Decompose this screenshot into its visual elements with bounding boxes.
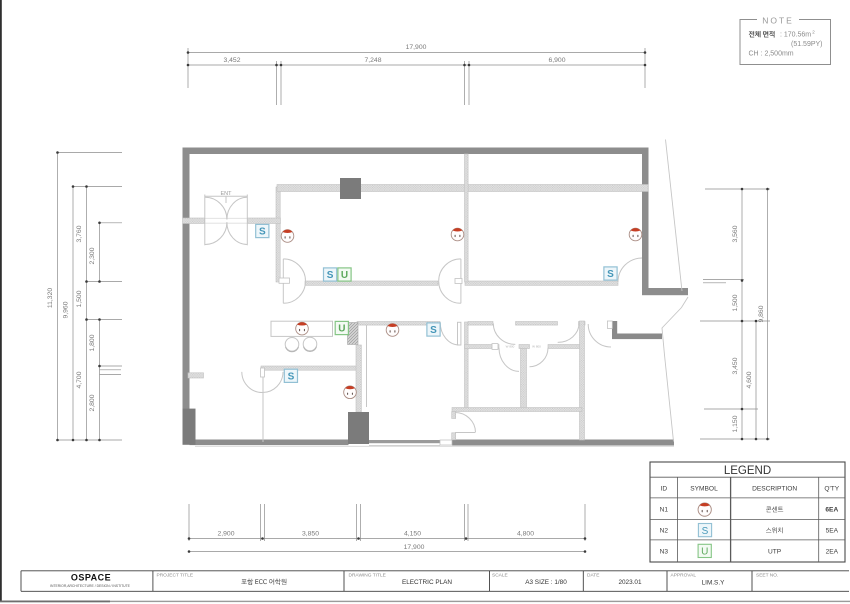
- svg-text:6,900: 6,900: [548, 57, 565, 64]
- svg-text:1,150: 1,150: [732, 415, 739, 432]
- svg-text:SYMBOL: SYMBOL: [690, 485, 718, 492]
- svg-text:6EA: 6EA: [825, 507, 838, 514]
- svg-text:4,150: 4,150: [404, 531, 421, 538]
- svg-text:(51.59PY): (51.59PY): [791, 41, 823, 48]
- svg-text:W 800: W 800: [506, 345, 515, 349]
- svg-text:4,800: 4,800: [517, 531, 534, 538]
- svg-text:INTERIOR,ARCHITECTURE / DESIGN: INTERIOR,ARCHITECTURE / DESIGN / INSTITU…: [50, 584, 131, 588]
- svg-text:3,450: 3,450: [732, 357, 739, 374]
- svg-text:17,900: 17,900: [404, 544, 425, 551]
- svg-text:1,500: 1,500: [732, 294, 739, 311]
- svg-text:U: U: [701, 547, 708, 558]
- svg-text:A3 SIZE : 1/80: A3 SIZE : 1/80: [525, 579, 567, 586]
- svg-text:2,900: 2,900: [217, 531, 234, 538]
- svg-text:: 170.56m: : 170.56m: [780, 32, 811, 39]
- svg-text:DATE: DATE: [587, 573, 599, 579]
- svg-text:2023.01: 2023.01: [618, 579, 642, 586]
- svg-text:3,560: 3,560: [732, 225, 739, 242]
- svg-text:W 800: W 800: [532, 345, 541, 349]
- svg-text:ENT: ENT: [221, 191, 233, 197]
- svg-text:2EA: 2EA: [826, 548, 839, 555]
- svg-text:9,860: 9,860: [758, 305, 765, 322]
- svg-text:1,800: 1,800: [89, 334, 96, 351]
- svg-text:N2: N2: [660, 528, 669, 535]
- svg-text:CH : 2,500mm: CH : 2,500mm: [749, 51, 794, 58]
- svg-text:9,960: 9,960: [63, 301, 70, 318]
- svg-text:2,800: 2,800: [89, 394, 96, 411]
- svg-text:1,500: 1,500: [76, 290, 83, 307]
- svg-text:3,760: 3,760: [76, 225, 83, 242]
- svg-text:SCALE: SCALE: [492, 573, 508, 579]
- svg-text:ID: ID: [661, 485, 668, 492]
- svg-text:UTP: UTP: [768, 548, 782, 555]
- svg-text:APPROVAL: APPROVAL: [671, 573, 697, 579]
- svg-text:DESCRIPTION: DESCRIPTION: [752, 485, 797, 492]
- svg-text:3,452: 3,452: [223, 57, 240, 64]
- svg-text:LIM.S.Y: LIM.S.Y: [702, 580, 725, 587]
- svg-text:Q'TY: Q'TY: [824, 485, 839, 492]
- svg-text:PROJECT TITLE: PROJECT TITLE: [157, 573, 194, 579]
- svg-text:4,600: 4,600: [746, 371, 753, 388]
- svg-text:2: 2: [812, 30, 815, 35]
- svg-text:DRAWING TITLE: DRAWING TITLE: [349, 573, 386, 579]
- svg-text:N1: N1: [660, 507, 669, 514]
- svg-text:3,850: 3,850: [302, 531, 319, 538]
- svg-text:S: S: [702, 526, 709, 537]
- svg-text:17,900: 17,900: [406, 44, 427, 51]
- svg-text:4,700: 4,700: [76, 371, 83, 388]
- svg-text:11,320: 11,320: [47, 288, 54, 309]
- svg-text:OSPACE: OSPACE: [71, 573, 111, 583]
- svg-text:LEGEND: LEGEND: [724, 465, 771, 477]
- svg-text:NOTE: NOTE: [762, 16, 794, 26]
- svg-text:2,300: 2,300: [89, 247, 96, 264]
- svg-text:SEET NO.: SEET NO.: [756, 573, 778, 579]
- svg-text:7,248: 7,248: [364, 57, 381, 64]
- svg-text:5EA: 5EA: [826, 528, 839, 535]
- svg-text:N3: N3: [660, 548, 669, 555]
- svg-text:ELECTRIC PLAN: ELECTRIC PLAN: [402, 579, 452, 586]
